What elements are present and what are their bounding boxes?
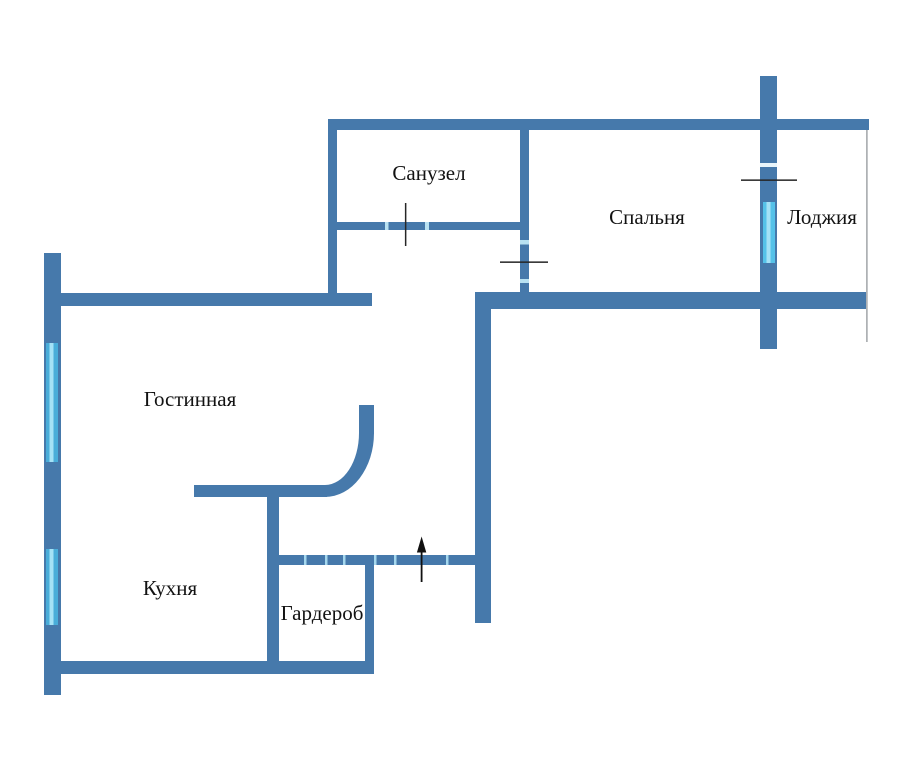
svg-text:Санузел: Санузел [392, 161, 465, 185]
svg-text:Кухня: Кухня [143, 576, 198, 600]
svg-text:Лоджия: Лоджия [787, 205, 857, 229]
svg-text:Гардероб: Гардероб [281, 601, 364, 625]
svg-text:Гостинная: Гостинная [144, 387, 237, 411]
svg-text:Спальня: Спальня [609, 205, 685, 229]
